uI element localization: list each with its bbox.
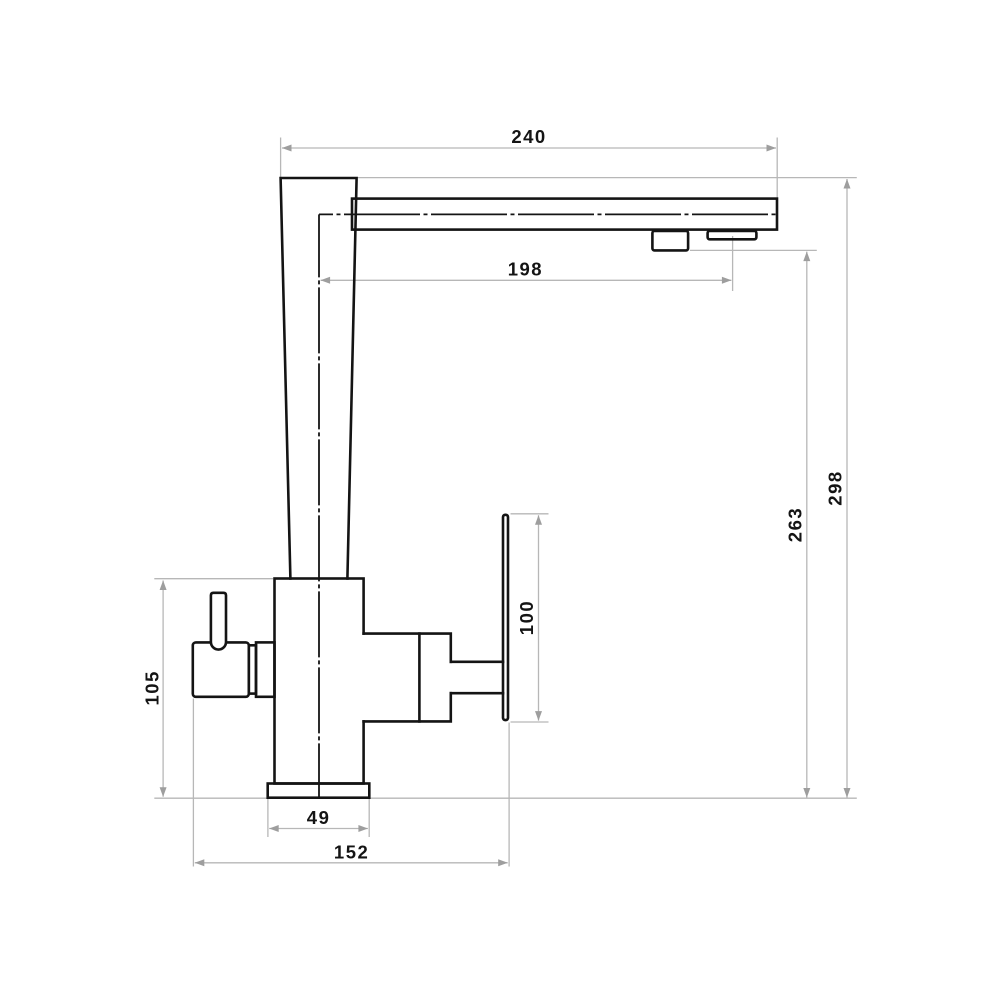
svg-text:198: 198 (508, 258, 543, 279)
svg-text:263: 263 (785, 507, 806, 542)
svg-text:152: 152 (334, 841, 369, 862)
svg-text:105: 105 (142, 670, 163, 705)
svg-text:100: 100 (516, 600, 537, 635)
svg-text:298: 298 (825, 470, 846, 505)
svg-text:49: 49 (307, 807, 331, 828)
svg-text:240: 240 (511, 126, 546, 147)
